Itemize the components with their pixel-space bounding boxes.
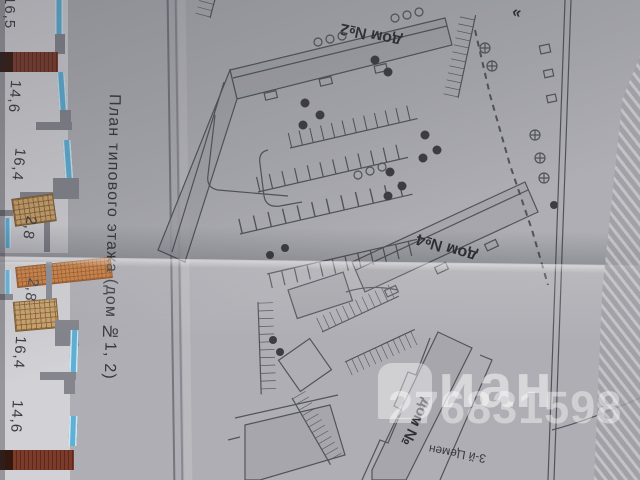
title-quote-mark: » — [510, 4, 523, 23]
page-caption-typical-floor-plan: План типового этажа (дом №1, 2) — [99, 94, 123, 469]
window-strip — [4, 218, 11, 248]
parking-row — [196, 0, 230, 18]
loggia-end-block — [0, 450, 13, 470]
window-strip — [55, 0, 63, 36]
court-square — [279, 339, 332, 392]
wall-segment — [36, 122, 72, 130]
wall-stub — [46, 262, 52, 300]
parking-row — [255, 143, 408, 192]
boundary-tree-icon — [530, 130, 540, 140]
service-building-shape — [288, 272, 352, 318]
room-area-label: 14,6 — [6, 80, 23, 114]
room-area-label: 2,8 — [22, 277, 41, 303]
boundary-tree-icon — [487, 61, 497, 71]
window-strip — [63, 140, 74, 182]
room-area-label: 14,6 — [8, 400, 25, 434]
balcony-hatch — [13, 298, 59, 332]
parking-row — [443, 12, 475, 98]
watermark-listing-id: 276831598 — [388, 385, 622, 430]
utility-blocks — [539, 44, 556, 103]
loggia-red-bar — [0, 450, 74, 470]
boundary-tree-icon — [539, 173, 549, 183]
room-area-label: 16,4 — [9, 147, 27, 182]
building-2-shape — [158, 18, 452, 262]
wall-segment — [64, 378, 75, 394]
boundary-tree-icon — [535, 153, 545, 163]
window-strip — [69, 330, 78, 372]
parking-row — [258, 301, 276, 394]
loggia-end-block — [0, 52, 13, 72]
driveway-path — [260, 150, 302, 206]
room-area-label: 16,5 — [2, 0, 17, 29]
photo-of-folded-plan-page: 16,5 14,6 16,4 2,8 2,8 16,4 14,6 План ти… — [0, 0, 640, 480]
street-label: 3-й Цемен — [428, 442, 487, 466]
boundary-tree-icon — [480, 43, 490, 53]
building-partial-shape — [245, 405, 345, 480]
wall-stub — [0, 210, 13, 216]
room-area-label: 2,8 — [20, 215, 39, 241]
room-area-label: 16,4 — [11, 336, 28, 370]
wall-segment — [55, 34, 65, 54]
window-strip — [68, 416, 77, 446]
loggia-red-bar — [0, 52, 58, 72]
wall-stub — [0, 294, 13, 300]
